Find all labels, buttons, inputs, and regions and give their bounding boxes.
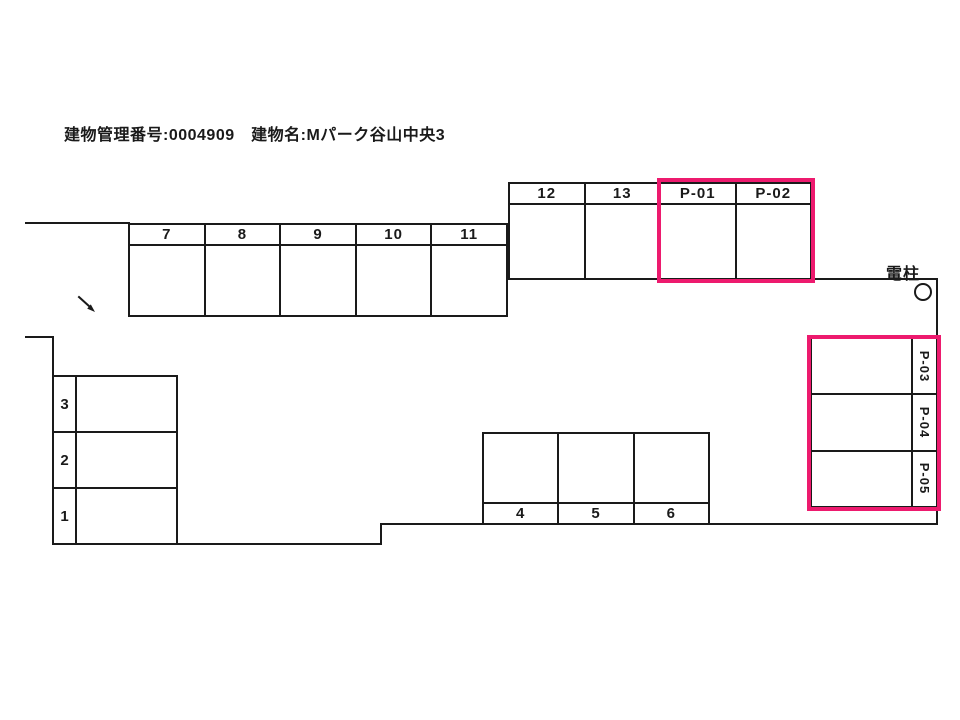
space-area (661, 205, 735, 278)
space-label: 3 (54, 377, 77, 431)
parking-stack-p03-p05: P-03 P-04 P-05 (810, 337, 938, 508)
space-label: P-01 (661, 184, 735, 205)
parking-space-7: 7 (130, 225, 206, 315)
parking-row-12-to-p02: 12 13 P-01 P-02 (508, 182, 812, 280)
space-area (559, 434, 632, 502)
space-area (130, 246, 204, 315)
parking-space-5: 5 (559, 434, 634, 523)
space-label: P-03 (911, 339, 936, 393)
parking-space-6: 6 (635, 434, 708, 523)
parking-space-10: 10 (357, 225, 433, 315)
parking-space-11: 11 (432, 225, 506, 315)
space-area (510, 205, 584, 278)
space-label: 9 (281, 225, 355, 246)
space-label: P-02 (737, 184, 811, 205)
space-area (206, 246, 280, 315)
space-label: 12 (510, 184, 584, 205)
parking-space-p01: P-01 (661, 184, 737, 278)
space-area (812, 339, 911, 393)
space-label: 6 (635, 502, 708, 523)
parking-row-4-6: 4 5 6 (482, 432, 710, 525)
parking-space-3: 3 (54, 377, 176, 433)
parking-row-7-11: 7 8 9 10 11 (128, 223, 508, 317)
space-label: 10 (357, 225, 431, 246)
space-area (357, 246, 431, 315)
utility-pole-circle (915, 284, 931, 300)
space-label: 5 (559, 502, 632, 523)
parking-space-p05: P-05 (812, 452, 936, 506)
space-label: 4 (484, 502, 557, 523)
space-label: 13 (586, 184, 660, 205)
space-area (586, 205, 660, 278)
parking-space-p04: P-04 (812, 395, 936, 451)
parking-space-2: 2 (54, 433, 176, 489)
parking-stack-1-3: 3 2 1 (52, 375, 178, 545)
space-label: P-05 (911, 452, 936, 506)
parking-layout-diagram: 建物管理番号:0004909 建物名:Mパーク谷山中央3 12 13 P-01 … (0, 0, 960, 720)
space-area (77, 377, 176, 431)
space-area (812, 452, 911, 506)
space-area (281, 246, 355, 315)
space-area (737, 205, 811, 278)
utility-pole-label: 電柱 (886, 260, 920, 284)
parking-space-p03: P-03 (812, 339, 936, 395)
parking-space-12: 12 (510, 184, 586, 278)
space-area (484, 434, 557, 502)
parking-space-4: 4 (484, 434, 559, 523)
space-area (77, 433, 176, 487)
parking-space-9: 9 (281, 225, 357, 315)
space-label: 1 (54, 489, 77, 543)
parking-space-1: 1 (54, 489, 176, 543)
space-area (812, 395, 911, 449)
parking-space-8: 8 (206, 225, 282, 315)
parking-space-p02: P-02 (737, 184, 811, 278)
space-area (77, 489, 176, 543)
space-label: 2 (54, 433, 77, 487)
space-area (432, 246, 506, 315)
space-label: 8 (206, 225, 280, 246)
space-label: 11 (432, 225, 506, 246)
parking-space-13: 13 (586, 184, 662, 278)
space-area (635, 434, 708, 502)
space-label: 7 (130, 225, 204, 246)
space-label: P-04 (911, 395, 936, 449)
entrance-arrow-shaft (79, 297, 90, 307)
